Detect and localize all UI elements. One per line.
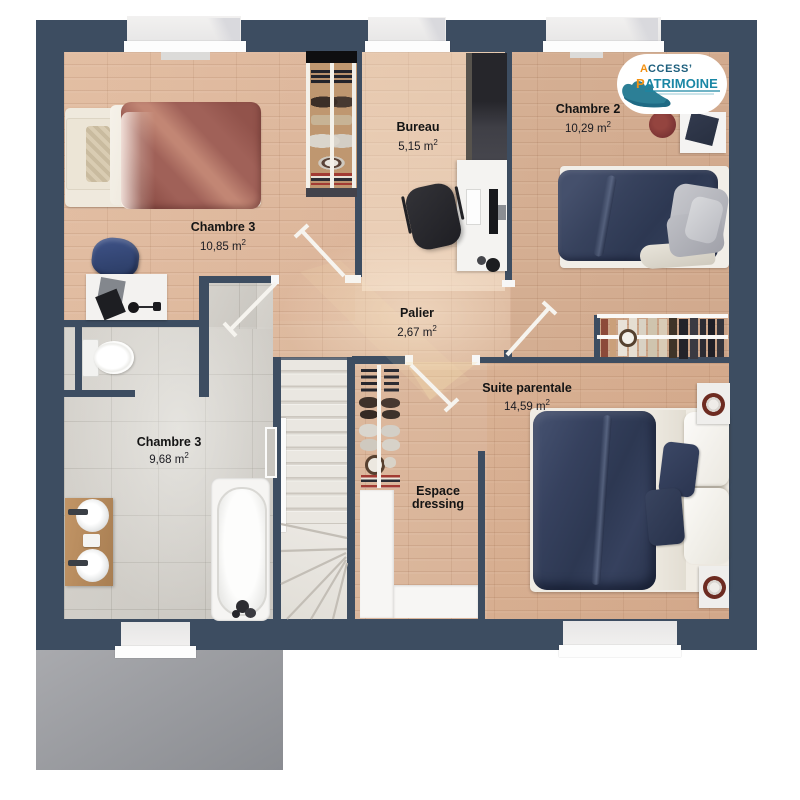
svg-text:CCESS’: CCESS’	[648, 63, 693, 75]
svg-text:ATRIMOINE: ATRIMOINE	[645, 76, 718, 91]
svg-text:P: P	[636, 76, 645, 91]
